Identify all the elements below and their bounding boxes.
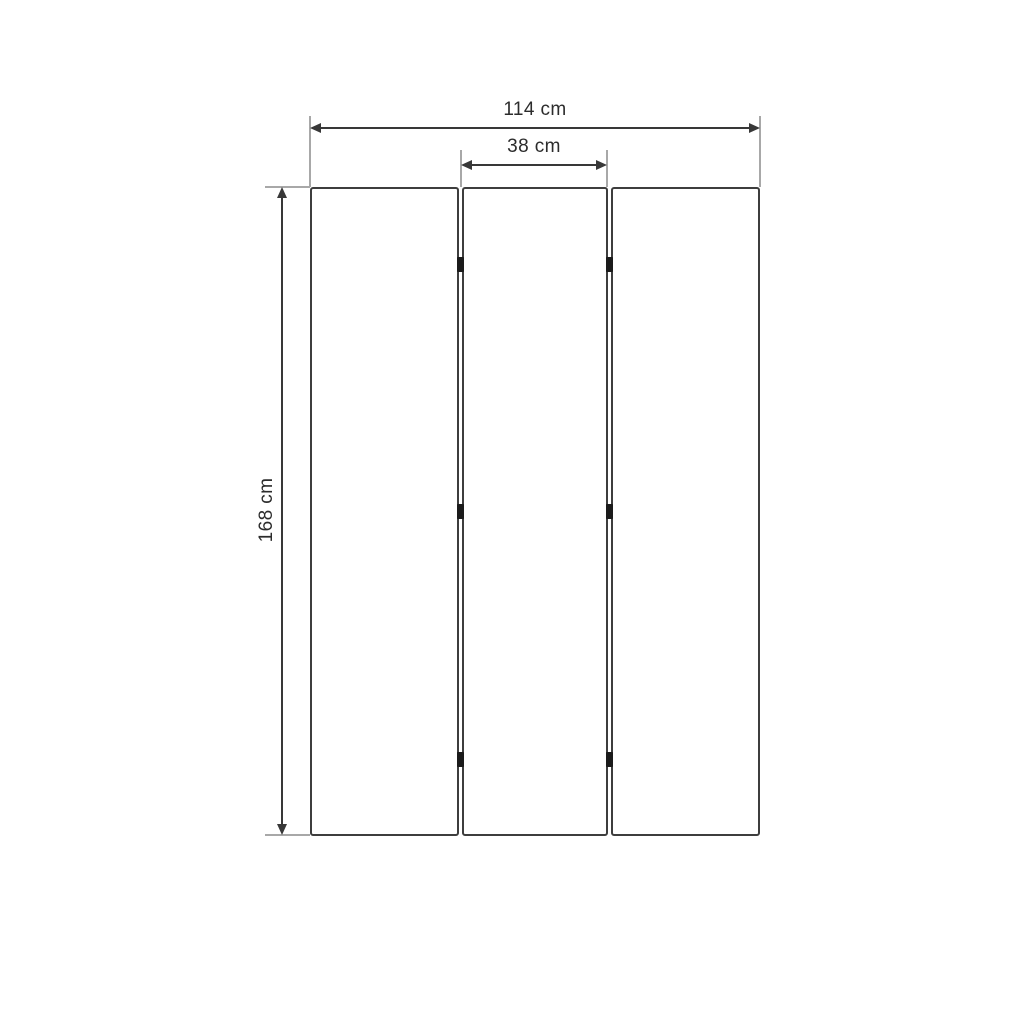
total-width-label: 114 cm xyxy=(435,99,635,121)
hinge-right-middle xyxy=(606,504,613,519)
panel-left xyxy=(310,187,459,836)
arrowhead-right-icon xyxy=(749,123,760,133)
panel-right xyxy=(611,187,760,836)
panel-middle xyxy=(462,187,608,836)
extension-line xyxy=(265,186,310,188)
arrowhead-left-icon xyxy=(461,160,472,170)
hinge-right-bottom xyxy=(606,752,613,767)
panel-width-label: 38 cm xyxy=(434,136,634,158)
dimension-line xyxy=(313,127,757,129)
height-label: 168 cm xyxy=(256,410,278,610)
hinge-left-middle xyxy=(457,504,464,519)
hinge-left-top xyxy=(457,257,464,272)
hinge-right-top xyxy=(606,257,613,272)
dimension-line xyxy=(281,191,283,831)
dimension-line xyxy=(464,164,604,166)
extension-line xyxy=(265,834,310,836)
hinge-left-bottom xyxy=(457,752,464,767)
dimension-diagram: 114 cm 38 cm 168 cm xyxy=(0,0,1024,1024)
arrowhead-right-icon xyxy=(596,160,607,170)
arrowhead-left-icon xyxy=(310,123,321,133)
arrowhead-down-icon xyxy=(277,824,287,835)
arrowhead-up-icon xyxy=(277,187,287,198)
